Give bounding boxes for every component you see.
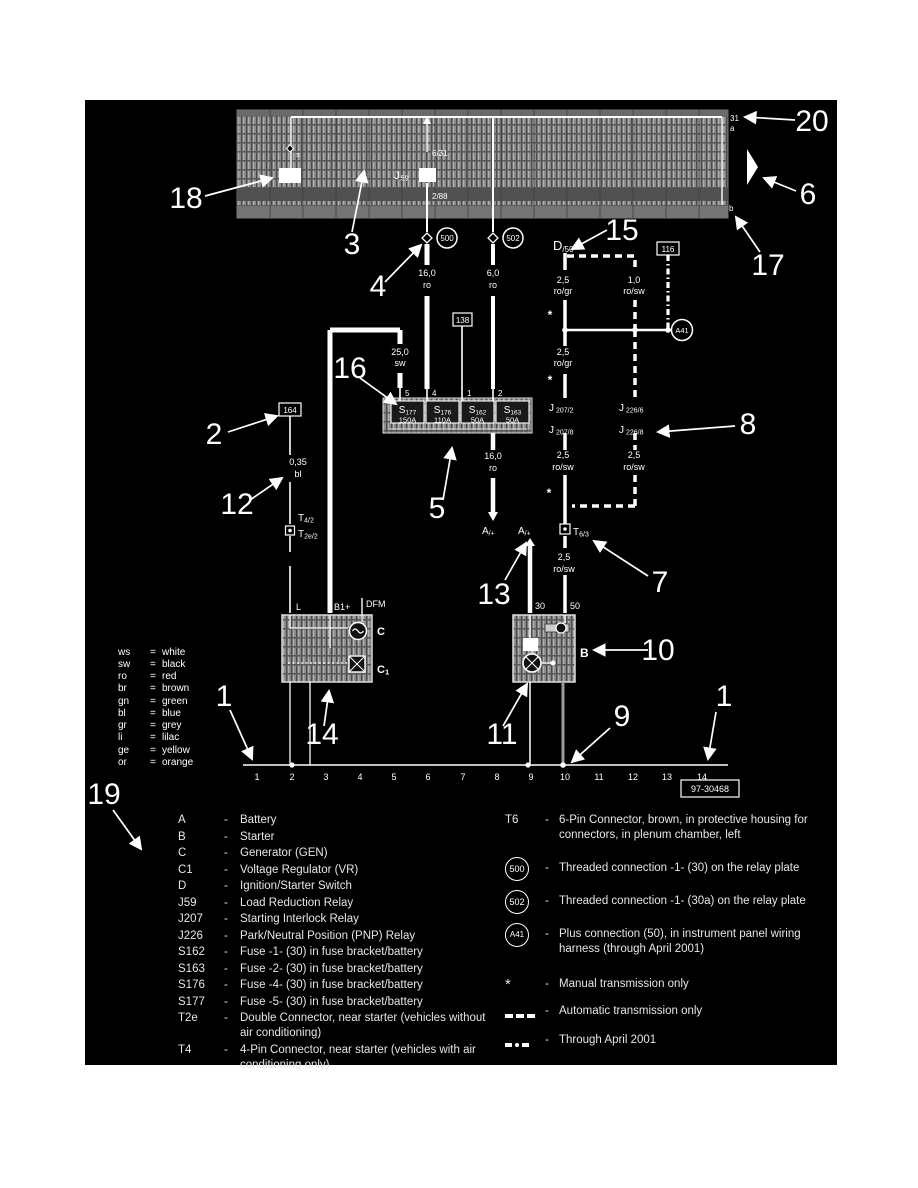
- connection-138-label: 138: [456, 316, 470, 325]
- regulator-C1-label: C1: [377, 664, 389, 677]
- component-legend-right: T6 - 6-Pin Connector, brown, in protecti…: [505, 813, 837, 1058]
- track-numbers: 12 34 56 78 910 1112 1314: [254, 772, 707, 782]
- svg-text:gr: gr: [118, 720, 128, 731]
- connection-164-label: 164: [283, 406, 297, 415]
- svg-text:=: =: [150, 708, 156, 719]
- legend-item: J59-Load Reduction Relay: [178, 896, 500, 911]
- svg-text:=: =: [150, 659, 156, 670]
- svg-text:=: =: [150, 732, 156, 743]
- asterisk-symbol: *: [505, 973, 511, 995]
- svg-text:grey: grey: [162, 720, 181, 731]
- rail-a-label: a: [730, 124, 735, 133]
- plus-connection-icon: A41: [505, 923, 529, 947]
- connector-500-label: 500: [440, 234, 454, 243]
- connector-502-label: 502: [506, 234, 520, 243]
- legend-item: A-Battery: [178, 813, 500, 828]
- battery-plus-label-2: A/+: [518, 526, 531, 538]
- svg-text:4: 4: [357, 772, 362, 782]
- legend-item-502: 502 - Threaded connection -1- (30a) on t…: [505, 890, 837, 914]
- fuse-s177: S177 150A: [391, 401, 424, 425]
- relay-pin-288-label: 2/88: [432, 192, 448, 201]
- legend-notes: * - Manual transmission only - Automatic…: [505, 973, 837, 1052]
- rail-b-label: b: [729, 204, 734, 213]
- threaded-connections: 500 502: [422, 228, 523, 248]
- callout-3: 3: [344, 228, 361, 261]
- svg-text:green: green: [162, 696, 188, 707]
- svg-text:yellow: yellow: [162, 745, 191, 756]
- callout-19: 19: [87, 778, 120, 811]
- t2e-2-label: T2e/2: [298, 529, 318, 541]
- callout-5: 5: [429, 492, 446, 525]
- wiring-diagram-page: 31 a b 3 s J59 2 6/31 2/88: [0, 0, 918, 1188]
- wire-160-lower-size: 16,0: [484, 451, 502, 461]
- svg-text:150A: 150A: [399, 416, 417, 425]
- callout-14: 14: [305, 718, 338, 751]
- starter-B-label: B: [580, 646, 589, 660]
- svg-text:or: or: [118, 757, 128, 768]
- legend-item: J226-Park/Neutral Position (PNP) Relay: [178, 929, 500, 944]
- starter-dot: [551, 661, 556, 666]
- rail-31-label: 31: [730, 114, 739, 123]
- wire-25-rosw2-size: 2,5: [628, 450, 641, 460]
- callout-9: 9: [614, 700, 631, 733]
- legend-item: B-Starter: [178, 830, 500, 845]
- part-number: 97-30468: [691, 784, 729, 794]
- svg-text:=: =: [150, 671, 156, 682]
- fuse-s176: S176 110A: [426, 401, 459, 425]
- wire-25-rogr2-color: ro/gr: [554, 358, 573, 368]
- starter-contact-icon: [556, 623, 566, 633]
- svg-text:9: 9: [528, 772, 533, 782]
- track-dot: [560, 762, 566, 768]
- svg-text:br: br: [118, 683, 128, 694]
- component-legend-left: A-Battery B-Starter C-Generator (GEN) C1…: [178, 813, 500, 1074]
- callout-1-right: 1: [716, 680, 733, 713]
- legend-item-a41: A41 - Plus connection (50), in instrumen…: [505, 923, 837, 957]
- pos3-pin-label: s: [296, 150, 300, 159]
- wire-160-lower-color: ro: [489, 463, 497, 473]
- t6-3-label: T6/3: [573, 527, 589, 539]
- wire-10-rosw-color: ro/sw: [623, 286, 645, 296]
- junction-dot: [665, 327, 671, 333]
- legend-item: S162-Fuse -1- (30) in fuse bracket/batte…: [178, 945, 500, 960]
- legend-item: S163-Fuse -2- (30) in fuse bracket/batte…: [178, 962, 500, 977]
- diagram-board: 31 a b 3 s J59 2 6/31 2/88: [85, 100, 837, 1065]
- svg-text:13: 13: [662, 772, 672, 782]
- wire-250-size: 25,0: [391, 347, 409, 357]
- terminal-50-label: 50: [570, 601, 580, 611]
- svg-text:=: =: [150, 745, 156, 756]
- threaded-connection-icon: 500: [505, 857, 529, 881]
- callout-20: 20: [795, 105, 828, 138]
- callout-13: 13: [477, 578, 510, 611]
- track-dot: [525, 762, 530, 767]
- svg-text:li: li: [118, 732, 122, 743]
- legend-item: S177-Fuse -5- (30) in fuse bracket/batte…: [178, 995, 500, 1010]
- note-automatic: - Automatic transmission only: [505, 1000, 837, 1023]
- svg-text:ws: ws: [117, 647, 130, 658]
- wire-color-key: ws=white sw=black ro=red br=brown gn=gre…: [117, 647, 194, 768]
- relay-pin2-label: 2: [425, 171, 431, 182]
- t2e-connector-dot-icon: [288, 529, 292, 533]
- svg-text:50A: 50A: [471, 416, 484, 425]
- callout-arrows: [113, 117, 796, 849]
- panel-pos3-label: 3: [287, 172, 293, 183]
- legend-item: T4-4-Pin Connector, near starter (vehicl…: [178, 1043, 500, 1073]
- wire-035-color: bl: [294, 469, 301, 479]
- wire-035-size: 0,35: [289, 457, 307, 467]
- relay-pin-631-label: 6/31: [432, 149, 448, 158]
- connector-500-diamond-icon: [422, 233, 432, 243]
- wire-25-rosw2-color: ro/sw: [623, 462, 645, 472]
- connector-502-diamond-icon: [488, 233, 498, 243]
- callout-4: 4: [370, 270, 387, 303]
- dashed-line-icon: [505, 1000, 538, 1023]
- svg-text:8: 8: [494, 772, 499, 782]
- threaded-connection-icon: 502: [505, 890, 529, 914]
- battery-plus-label-1: A/+: [482, 526, 495, 538]
- svg-text:6: 6: [425, 772, 430, 782]
- callout-12: 12: [220, 488, 253, 521]
- relay-j207-8-label: J207/8: [549, 425, 574, 437]
- svg-text:12: 12: [628, 772, 638, 782]
- fuse-s162: S162 50A: [461, 401, 494, 425]
- svg-text:5: 5: [391, 772, 396, 782]
- t6-connector-dot-icon: [563, 527, 567, 531]
- svg-text:lilac: lilac: [162, 732, 179, 743]
- wire-25-rosw-size: 2,5: [557, 450, 570, 460]
- connection-116-label: 116: [662, 245, 675, 254]
- legend-item-500: 500 - Threaded connection -1- (30) on th…: [505, 857, 837, 881]
- svg-text:brown: brown: [162, 683, 189, 694]
- svg-text:sw: sw: [118, 659, 131, 670]
- svg-text:2: 2: [289, 772, 294, 782]
- svg-text:3: 3: [323, 772, 328, 782]
- wire-160-size: 16,0: [418, 268, 436, 278]
- note-april2001: - Through April 2001: [505, 1029, 837, 1052]
- legend-item: C1-Voltage Regulator (VR): [178, 863, 500, 878]
- svg-text:=: =: [150, 757, 156, 768]
- svg-text:10: 10: [560, 772, 570, 782]
- wire-25-rogr2-size: 2,5: [557, 347, 570, 357]
- svg-text:=: =: [150, 720, 156, 731]
- manual-only-asterisk: *: [548, 373, 553, 387]
- svg-text:red: red: [162, 671, 176, 682]
- callout-11: 11: [486, 718, 517, 751]
- callout-2: 2: [206, 418, 223, 451]
- fuse-pin-2: 2: [498, 389, 503, 398]
- svg-text:ge: ge: [118, 745, 130, 756]
- connector-a41-label: A41: [675, 326, 688, 335]
- wire-25-rogr-color: ro/gr: [554, 286, 573, 296]
- legend-item: D-Ignition/Starter Switch: [178, 879, 500, 894]
- dash-dot-line-icon: [505, 1029, 532, 1052]
- legend-item-t6: T6 - 6-Pin Connector, brown, in protecti…: [505, 813, 837, 843]
- terminal-30-label: 30: [535, 601, 545, 611]
- svg-text:11: 11: [594, 772, 603, 782]
- fuse-s163: S163 50A: [496, 401, 529, 425]
- relay-j226-8-label: J226/8: [619, 425, 644, 437]
- svg-text:=: =: [150, 696, 156, 707]
- wire-250-color: sw: [395, 358, 407, 368]
- svg-text:blue: blue: [162, 708, 181, 719]
- callout-10: 10: [641, 634, 674, 667]
- wire-10-rosw-size: 1,0: [628, 275, 641, 285]
- legend-item: S176-Fuse -4- (30) in fuse bracket/batte…: [178, 978, 500, 993]
- wire-25-rogr-size: 2,5: [557, 275, 570, 285]
- callout-7: 7: [652, 566, 669, 599]
- fuse-pin-4: 4: [432, 389, 437, 398]
- solenoid-symbol-icon: [523, 638, 538, 651]
- relay-j226-6-label: J226/6: [619, 403, 644, 415]
- wire-60-color: ro: [489, 280, 497, 290]
- wire-25-rosw3-size: 2,5: [558, 552, 571, 562]
- callout-16: 16: [333, 352, 366, 385]
- note-manual: * - Manual transmission only: [505, 973, 837, 995]
- continuation-arrow-icon: [747, 149, 758, 185]
- svg-text:bl: bl: [118, 708, 126, 719]
- ground-track: 12 34 56 78 910 1112 1314 97-30468: [243, 762, 739, 797]
- wire-25-rosw-dashed: [572, 330, 635, 506]
- terminal-B1-label: B1+: [334, 602, 350, 612]
- wire-25-rosw-color: ro/sw: [552, 462, 574, 472]
- svg-text:=: =: [150, 647, 156, 658]
- manual-only-asterisk: *: [548, 308, 553, 322]
- svg-text:1: 1: [254, 772, 259, 782]
- svg-text:ro: ro: [118, 671, 127, 682]
- terminal-L-label: L: [296, 602, 301, 612]
- callout-18: 18: [169, 182, 202, 215]
- svg-text:white: white: [161, 647, 186, 658]
- legend-item: C-Generator (GEN): [178, 846, 500, 861]
- t4-2-label: T4/2: [298, 513, 314, 525]
- legend-item: J207-Starting Interlock Relay: [178, 912, 500, 927]
- fuse-pin-1: 1: [467, 389, 472, 398]
- svg-text:7: 7: [460, 772, 465, 782]
- wire-160-color: ro: [423, 280, 431, 290]
- callout-8: 8: [740, 408, 757, 441]
- callout-6: 6: [800, 178, 817, 211]
- callout-1-left: 1: [216, 680, 233, 713]
- terminal-DFM-label: DFM: [366, 599, 386, 609]
- d50-label: D/50: [553, 238, 574, 254]
- manual-only-asterisk: *: [547, 486, 552, 500]
- relay-j207-2-label: J207/2: [549, 403, 574, 415]
- svg-text:=: =: [150, 683, 156, 694]
- wire-25-rosw3-color: ro/sw: [553, 564, 575, 574]
- callout-17: 17: [751, 249, 784, 282]
- fuse-pin-5: 5: [405, 389, 410, 398]
- generator-C-label: C: [377, 626, 385, 638]
- relay-panel-band: 31 a b 3 s J59 2 6/31 2/88: [237, 110, 758, 232]
- continuation-halfarrow-icon: [525, 538, 535, 546]
- svg-text:orange: orange: [162, 757, 194, 768]
- legend-item: T2e-Double Connector, near starter (vehi…: [178, 1011, 500, 1041]
- track-dot: [289, 762, 294, 767]
- svg-text:50A: 50A: [506, 416, 519, 425]
- callout-15: 15: [605, 214, 638, 247]
- svg-text:gn: gn: [118, 696, 129, 707]
- wire-60-size: 6,0: [487, 268, 500, 278]
- continuation-halfarrow-icon: [488, 512, 498, 521]
- starter-component: 30 50 B: [513, 601, 589, 765]
- svg-text:110A: 110A: [434, 416, 451, 425]
- svg-text:black: black: [162, 659, 186, 670]
- fuse-block: S177 150A S176 110A S162 50A S163 50A: [383, 388, 532, 433]
